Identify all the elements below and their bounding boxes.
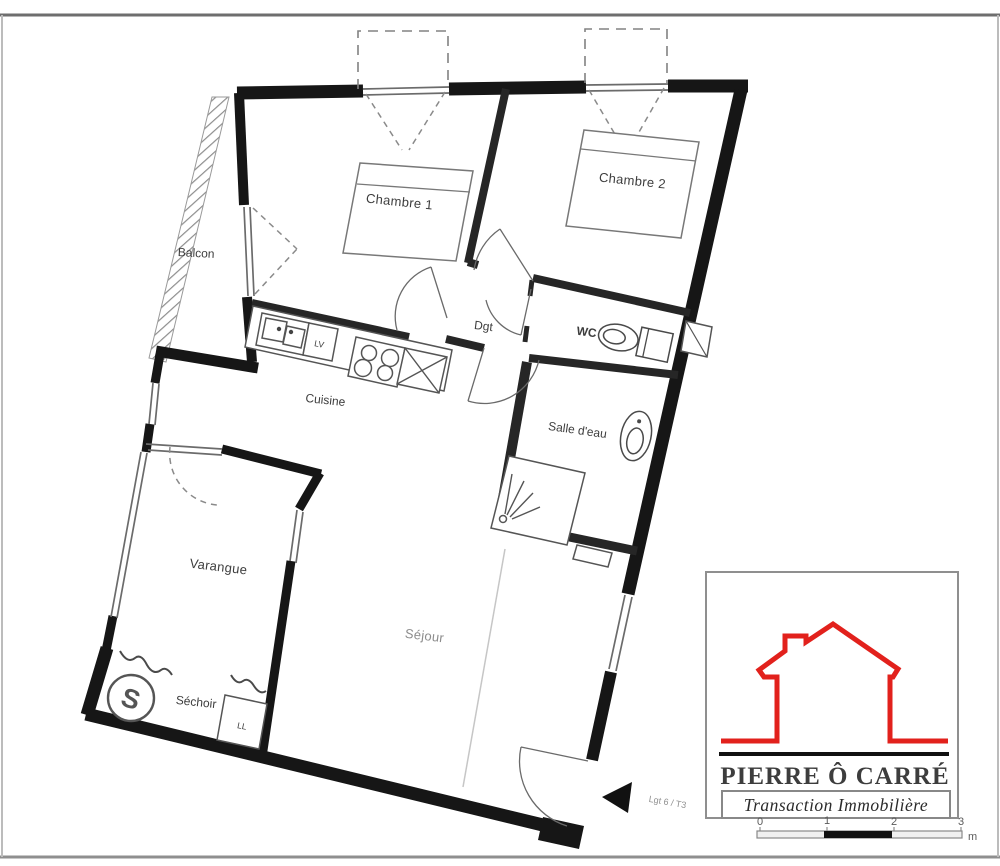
window-varangue-east	[290, 510, 303, 563]
door-swing-varangue	[170, 447, 217, 505]
shower-drain	[500, 516, 507, 523]
scale-tick-3: 3	[958, 816, 964, 828]
burner	[362, 346, 377, 361]
wall-wc-salledeau	[529, 358, 678, 375]
opening-varangue-north	[146, 444, 222, 455]
logo-name: PIERRE Ô CARRÉ	[720, 761, 949, 790]
window-swing-chambre1	[366, 92, 445, 150]
wall-west-a	[155, 354, 160, 383]
scale-bar: 0 1 2 3 m	[757, 815, 977, 843]
room-label-balcon: Balcon	[178, 245, 215, 261]
room-label-salledeau: Salle d'eau	[547, 419, 607, 441]
balcony-railing-hatch	[149, 97, 229, 362]
room-label-cuisine: Cuisine	[305, 391, 347, 409]
shower-icon	[491, 456, 585, 545]
wall-southwest-corner	[87, 648, 107, 715]
wall-varangue-east-a	[299, 473, 320, 509]
door-chambre1	[395, 267, 447, 330]
scale-tick-2: 2	[891, 816, 897, 828]
sink-basin-right	[283, 326, 305, 348]
door-entrance	[520, 747, 588, 826]
wall-entry-pillar	[538, 817, 584, 849]
wall-west-b	[146, 424, 150, 452]
wall-balcony-east-upper	[239, 93, 244, 205]
wall-balcony-bottom	[156, 351, 258, 368]
wall-top-left	[237, 91, 363, 93]
burner	[382, 350, 399, 367]
wall-dgt-south	[446, 339, 484, 348]
burner	[378, 366, 393, 381]
window-cuisine-west	[149, 383, 159, 425]
wall-wc-west-bottom	[525, 326, 527, 342]
window-chambre1	[363, 87, 449, 95]
wall-top-middle	[449, 87, 586, 89]
scale-tick-0: 0	[757, 816, 763, 828]
logo-tagline: Transaction Immobilière	[744, 795, 928, 815]
window-chambre2	[586, 84, 668, 91]
wall-right-lower	[592, 672, 611, 760]
burner	[355, 360, 372, 377]
wall-varangue-east-b	[262, 561, 291, 757]
entrance-annotation: Lgt 6 / T3	[602, 782, 687, 813]
wall-dgt-stub	[468, 262, 478, 265]
faucet-dot	[277, 327, 281, 331]
sink-basin-left	[262, 318, 287, 342]
wc-fixtures	[596, 319, 712, 363]
louver-squiggle-left	[120, 651, 172, 675]
louver-squiggle-right	[231, 675, 266, 692]
scale-unit: m	[968, 831, 977, 843]
wall-varangue-north	[222, 449, 321, 474]
room-label-sejour: Séjour	[404, 626, 445, 646]
floor-divider-line	[463, 549, 505, 787]
french-door-swing-balcony	[253, 208, 297, 294]
floor-plan-page: LV	[0, 0, 1000, 866]
window-varangue-west	[111, 452, 147, 618]
window-balcony-door	[244, 207, 254, 296]
scale-tick-1: 1	[824, 815, 830, 827]
kitchen-counter: LV	[245, 306, 452, 393]
wall-chambre1-chambre2	[468, 89, 506, 263]
entrance-arrow-icon	[602, 782, 632, 813]
room-label-sechoir: Séchoir	[175, 693, 217, 711]
room-label-wc: WC	[576, 324, 598, 341]
wall-varangue-west-end	[106, 616, 113, 651]
bed-icon-chambre1	[343, 163, 473, 261]
scale-bar-filled-segment	[824, 831, 892, 838]
agency-logo: PIERRE Ô CARRÉ Transaction Immobilière	[706, 572, 958, 818]
wall-bottom	[86, 714, 547, 826]
room-label-varangue: Varangue	[189, 556, 248, 578]
floor-plan-drawing: LV	[0, 0, 1000, 866]
window-sejour-east	[609, 595, 632, 671]
unit-label: Lgt 6 / T3	[648, 794, 687, 810]
awning-box-chambre2	[585, 29, 667, 84]
toilet-tank	[636, 327, 673, 362]
awning-box-chambre1	[358, 31, 448, 89]
room-label-dgt: Dgt	[473, 318, 494, 334]
faucet-dot	[289, 330, 293, 334]
door-chambre2	[474, 229, 533, 281]
wall-chambre2-wc	[533, 278, 690, 313]
